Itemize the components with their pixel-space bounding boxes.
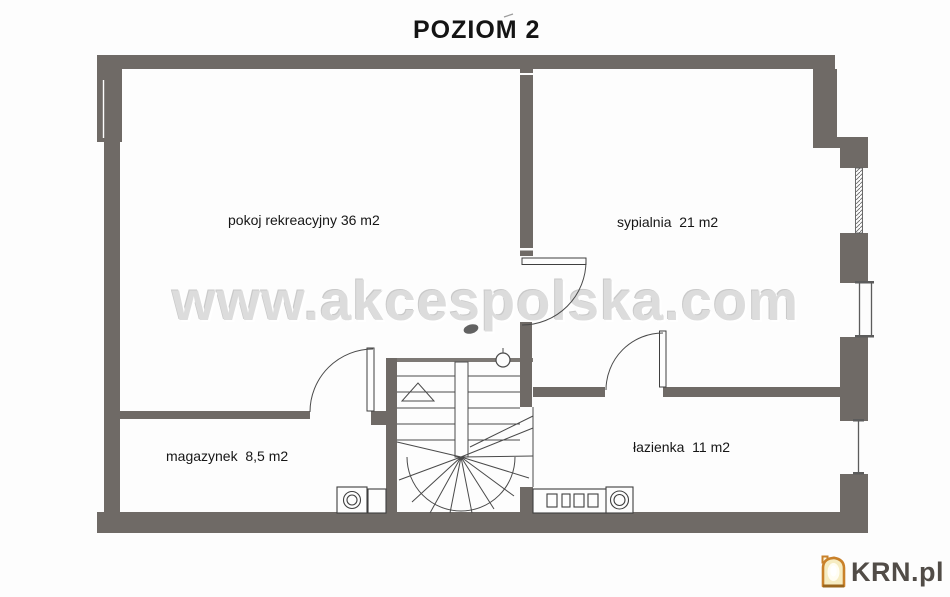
room-label-bathroom: łazienka 11 m2 <box>633 439 730 455</box>
door-bedroom <box>522 258 586 325</box>
interior-walls <box>120 69 840 513</box>
door-bedroom-swing-arc <box>522 261 586 325</box>
window-right-middle <box>855 281 874 338</box>
staircase <box>386 358 533 513</box>
room-label-recreation: pokoj rekreacyjny 36 m2 <box>228 212 380 228</box>
krn-logo: KRN.pl <box>819 555 944 589</box>
page-title: POZIOM 2 <box>413 16 540 45</box>
window-right-upper <box>856 168 863 233</box>
stair-winder-arc <box>407 457 515 511</box>
floorplan-drawing <box>0 0 950 597</box>
scan-smudge <box>463 323 480 336</box>
door-bathroom-leaf <box>660 331 667 387</box>
door-bathroom <box>606 331 666 390</box>
window-right-lower <box>853 419 864 475</box>
krn-logo-text: KRN.pl <box>851 559 944 586</box>
room-label-storage: magazynek 8,5 m2 <box>166 448 288 464</box>
door-bathroom-swing-arc <box>606 333 663 390</box>
bathroom-fixtures <box>533 487 633 513</box>
floorplan-page: www.akcespolska.com <box>0 0 950 597</box>
door-storage-leaf <box>367 348 374 411</box>
column-symbol <box>496 348 510 367</box>
door-storage <box>310 348 374 412</box>
door-bedroom-leaf <box>522 258 586 265</box>
washing-machine-storage <box>337 487 386 513</box>
room-label-bedroom: sypialnia 21 m2 <box>617 214 718 230</box>
door-storage-swing-arc <box>310 349 373 412</box>
house-icon <box>819 555 848 589</box>
stair-center-rail <box>455 362 468 457</box>
